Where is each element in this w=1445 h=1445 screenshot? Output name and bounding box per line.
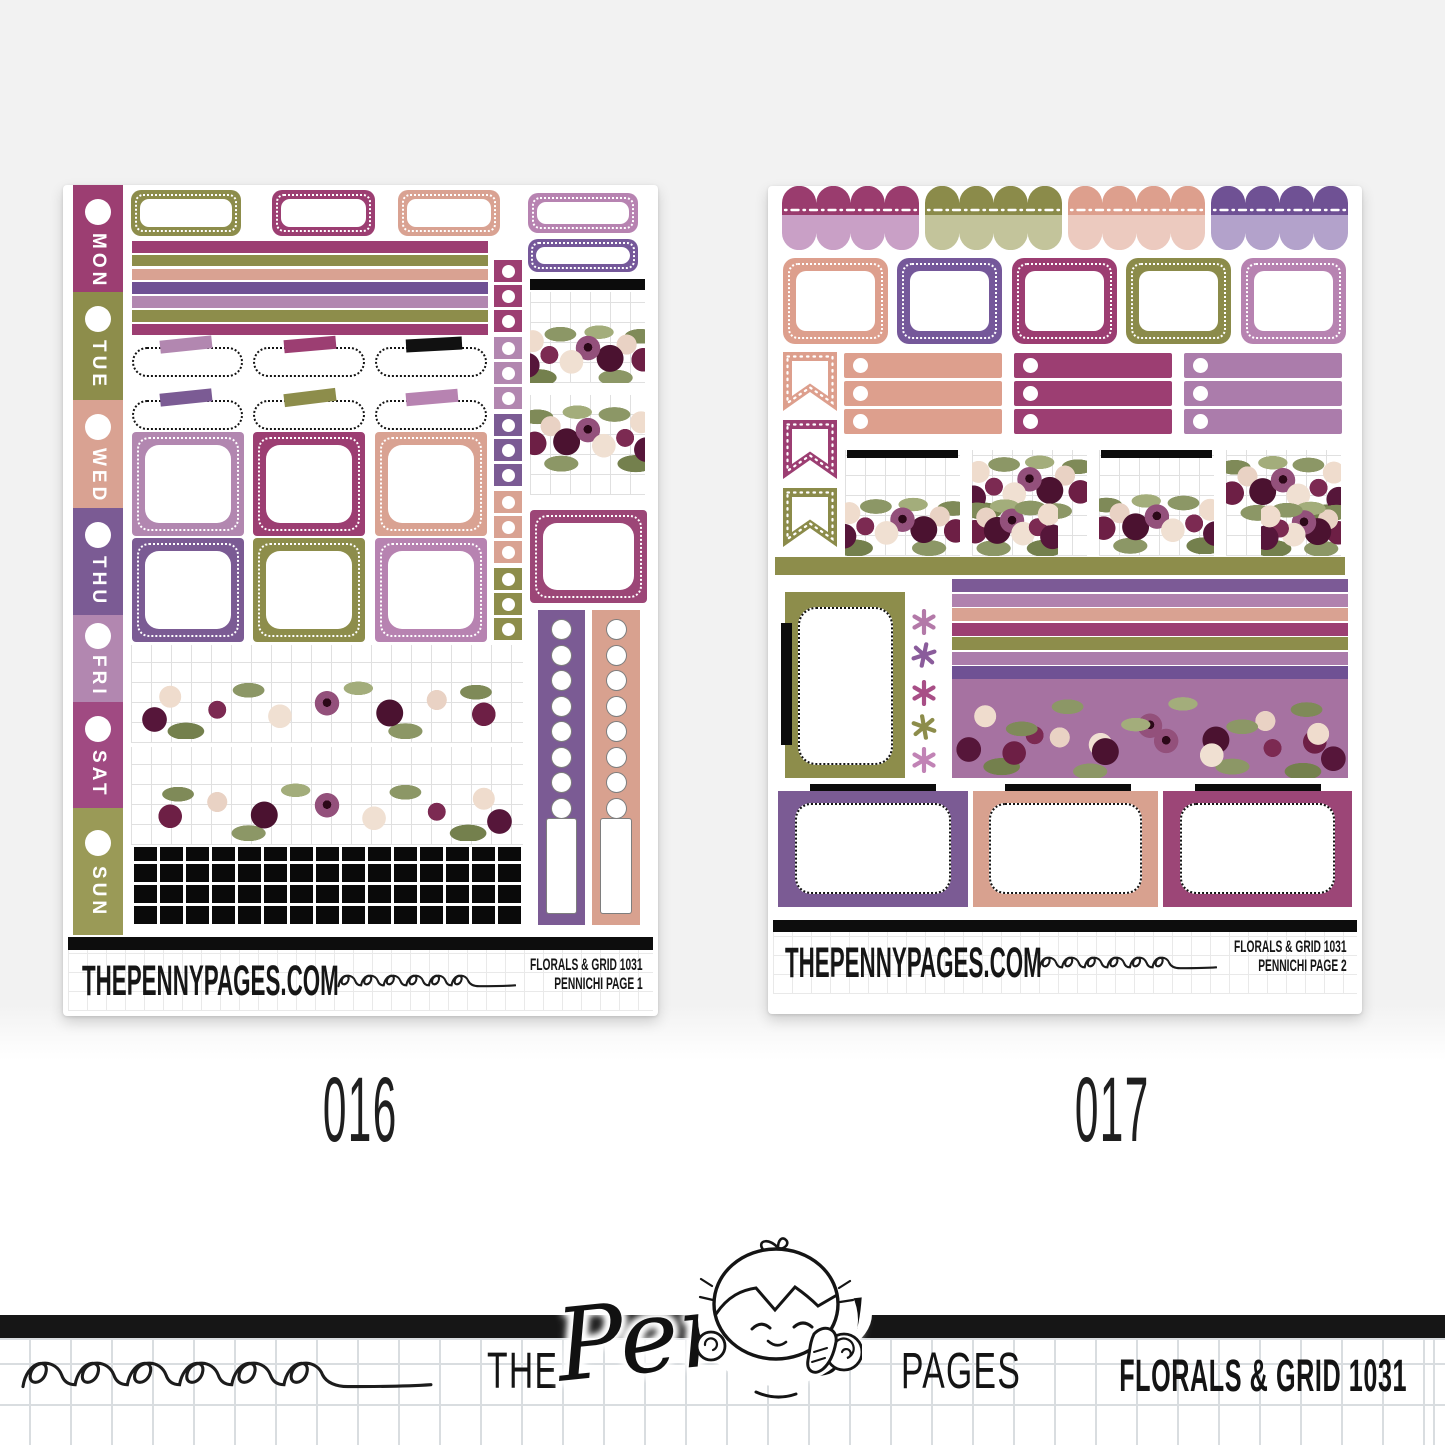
washi-strip bbox=[132, 310, 488, 322]
washi-strip bbox=[952, 652, 1348, 665]
full-box-sticker bbox=[783, 258, 888, 344]
scallop-sticker bbox=[782, 186, 919, 250]
black-header-washi bbox=[847, 450, 958, 458]
checklist-row-sticker bbox=[1184, 353, 1342, 378]
checklist-row-sticker bbox=[1184, 381, 1342, 406]
day-label: FRI bbox=[87, 655, 109, 698]
full-box-sticker bbox=[1241, 258, 1346, 344]
washi-strip bbox=[132, 324, 488, 336]
write-in-slot bbox=[600, 818, 632, 914]
write-in-area bbox=[1180, 803, 1335, 894]
date-cover-sun: SUN bbox=[73, 808, 123, 935]
full-box-sticker bbox=[375, 432, 487, 536]
label-sticker bbox=[272, 190, 375, 236]
dotted-box-sticker bbox=[253, 347, 365, 377]
date-cover-wed: WED bbox=[73, 400, 123, 508]
washi-strip bbox=[132, 241, 488, 253]
checkbox-sticker bbox=[494, 439, 522, 461]
sheet-footer: THEPENNYPAGES.COM FLORALS & GRID 1031 PE… bbox=[773, 932, 1357, 994]
dotted-box-sticker bbox=[375, 400, 487, 430]
dotted-box-sticker bbox=[253, 400, 365, 430]
kit-name: FLORALS & GRID 1031 PENNICHI PAGE 2 bbox=[1165, 938, 1347, 976]
punch-hole bbox=[85, 830, 111, 856]
journal-box-sticker bbox=[1163, 791, 1352, 907]
sticker-sheet-1: MON TUE WED THU FRI SAT SUN bbox=[63, 185, 658, 1016]
washi-strip bbox=[132, 255, 488, 267]
squiggle-doodle-icon bbox=[10, 1346, 440, 1404]
journal-box-sticker bbox=[973, 791, 1158, 907]
penny-girl-doodle-icon bbox=[698, 1234, 862, 1404]
label-sticker bbox=[528, 193, 638, 233]
journal-box-sticker bbox=[778, 791, 968, 907]
full-box-sticker bbox=[897, 258, 1002, 344]
dotted-box-sticker bbox=[132, 347, 243, 377]
date-cover-fri: FRI bbox=[73, 615, 123, 702]
checkbox-sticker bbox=[494, 362, 522, 384]
washi-strip bbox=[952, 623, 1348, 636]
checkbox-sticker bbox=[494, 310, 522, 332]
pennant-sticker bbox=[782, 419, 838, 481]
asterisk-sticker bbox=[911, 680, 937, 706]
sheet-number-016: 016 bbox=[260, 1058, 460, 1163]
checklist-row-sticker bbox=[844, 409, 1002, 434]
washi-strip bbox=[132, 282, 488, 294]
floral-washi-strip bbox=[952, 679, 1348, 778]
black-header-washi bbox=[1101, 450, 1212, 458]
day-label: WED bbox=[87, 448, 109, 504]
full-box-sticker bbox=[375, 538, 487, 642]
dotted-box-sticker bbox=[132, 400, 243, 430]
black-grid-washi-strip bbox=[131, 847, 523, 927]
checkbox-sticker bbox=[494, 260, 522, 282]
full-box-sticker bbox=[253, 432, 365, 536]
kit-name: FLORALS & GRID 1031 PENNICHI PAGE 1 bbox=[461, 956, 643, 994]
punch-hole bbox=[85, 306, 111, 332]
asterisk-sticker bbox=[909, 640, 940, 671]
day-label: SAT bbox=[87, 750, 109, 799]
full-box-sticker bbox=[530, 510, 647, 603]
washi-strip bbox=[952, 666, 1348, 679]
scallop-sticker bbox=[925, 186, 1062, 250]
date-cover-thu: THU bbox=[73, 508, 123, 615]
checklist-row-sticker bbox=[1184, 409, 1342, 434]
black-clip-tab bbox=[781, 623, 792, 745]
sticker-sheet-2: THEPENNYPAGES.COM FLORALS & GRID 1031 PE… bbox=[768, 186, 1362, 1014]
write-in-area bbox=[798, 607, 893, 765]
checklist-row-sticker bbox=[1014, 381, 1172, 406]
asterisk-sticker bbox=[909, 712, 939, 742]
sheet-footer: THEPENNYPAGES.COM FLORALS & GRID 1031 PE… bbox=[68, 950, 653, 1011]
floral-photo-sticker bbox=[845, 450, 960, 556]
washi-strip bbox=[952, 594, 1348, 607]
product-image: MON TUE WED THU FRI SAT SUN bbox=[0, 0, 1445, 1445]
checkbox-sticker bbox=[494, 618, 522, 640]
washi-strip bbox=[952, 608, 1348, 621]
checkbox-sticker bbox=[494, 593, 522, 615]
washi-strip bbox=[132, 296, 488, 308]
full-box-sticker bbox=[253, 538, 365, 642]
full-box-sticker bbox=[1126, 258, 1231, 344]
checklist-row-sticker bbox=[1014, 353, 1172, 378]
washi-strip bbox=[775, 557, 1345, 575]
floral-photo-sticker bbox=[1099, 450, 1214, 556]
checklist-row-sticker bbox=[1014, 409, 1172, 434]
scallop-sticker bbox=[1068, 186, 1205, 250]
washi-strip bbox=[952, 579, 1348, 592]
journal-card-sticker bbox=[785, 592, 905, 778]
punch-hole bbox=[85, 716, 111, 742]
sheet-footer-bar bbox=[773, 920, 1357, 932]
washi-strip bbox=[132, 269, 488, 281]
punch-hole bbox=[85, 623, 111, 649]
day-label: SUN bbox=[87, 866, 109, 918]
checkbox-sticker bbox=[494, 541, 522, 563]
asterisk-sticker bbox=[911, 609, 937, 635]
asterisk-sticker bbox=[911, 747, 937, 773]
write-in-slot bbox=[546, 818, 577, 914]
checklist-column-sticker bbox=[538, 610, 585, 925]
checkbox-sticker bbox=[494, 387, 522, 409]
checkbox-sticker bbox=[494, 491, 522, 513]
label-sticker bbox=[398, 190, 500, 236]
write-in-area bbox=[989, 803, 1142, 894]
full-box-sticker bbox=[132, 432, 244, 536]
full-box-sticker bbox=[132, 538, 244, 642]
day-label: MON bbox=[87, 233, 109, 289]
checkbox-sticker bbox=[494, 464, 522, 486]
scallop-sticker bbox=[1211, 186, 1348, 250]
black-header-washi bbox=[530, 279, 645, 290]
punch-hole bbox=[85, 199, 111, 225]
date-cover-mon: MON bbox=[73, 185, 123, 292]
checkbox-sticker bbox=[494, 568, 522, 590]
checklist-row-sticker bbox=[844, 381, 1002, 406]
floral-washi-strip bbox=[131, 645, 523, 743]
punch-hole bbox=[85, 414, 111, 440]
checkbox-sticker bbox=[494, 414, 522, 436]
date-cover-tue: TUE bbox=[73, 292, 123, 400]
floral-photo-sticker bbox=[530, 395, 645, 495]
floral-photo-sticker bbox=[1226, 450, 1341, 556]
checkbox-sticker bbox=[494, 285, 522, 307]
full-box-sticker bbox=[1012, 258, 1117, 344]
dotted-box-sticker bbox=[375, 347, 487, 377]
checklist-row-sticker bbox=[844, 353, 1002, 378]
footer-kit-name: FLORALS & GRID 1031 bbox=[893, 1350, 1407, 1402]
sheet-number-017: 017 bbox=[1012, 1058, 1212, 1163]
day-label: TUE bbox=[87, 340, 109, 390]
floral-washi-strip bbox=[131, 747, 523, 845]
write-in-area bbox=[795, 803, 951, 894]
checklist-column-sticker bbox=[592, 610, 640, 925]
floral-photo-sticker bbox=[530, 292, 645, 383]
label-sticker bbox=[528, 239, 638, 272]
label-sticker bbox=[131, 190, 241, 236]
sheet-footer-bar bbox=[68, 937, 653, 950]
washi-strip bbox=[952, 637, 1348, 650]
date-cover-sat: SAT bbox=[73, 702, 123, 808]
punch-hole bbox=[85, 522, 111, 548]
floral-photo-sticker bbox=[972, 450, 1087, 556]
day-label: THU bbox=[87, 556, 109, 607]
checkbox-sticker bbox=[494, 337, 522, 359]
checkbox-sticker bbox=[494, 516, 522, 538]
pennant-sticker bbox=[782, 351, 838, 413]
pennant-sticker bbox=[782, 487, 838, 549]
